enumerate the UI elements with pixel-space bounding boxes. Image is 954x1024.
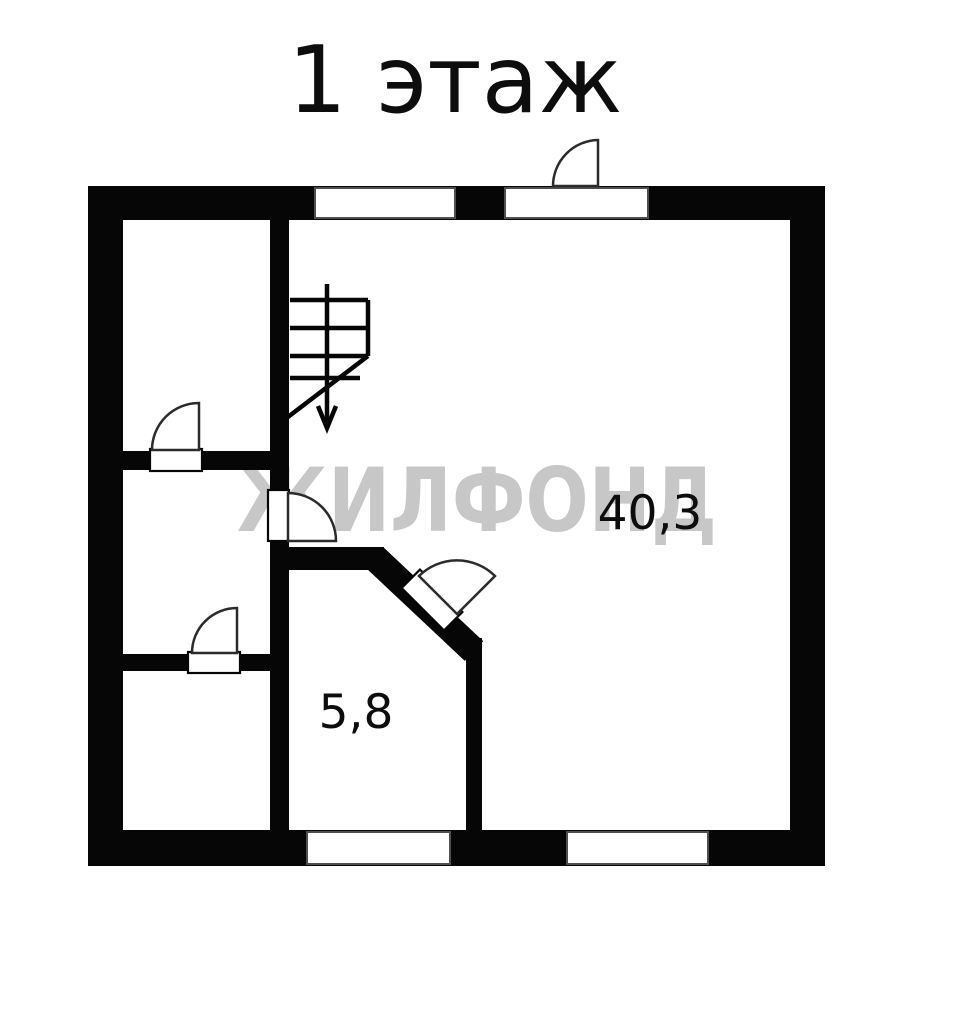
wall-small-room-right: [466, 638, 482, 866]
door-sill-hall: [268, 490, 289, 541]
floor-plan-drawing: ЖИЛФОНД: [0, 0, 954, 1024]
main-room-area-label: 40,3: [598, 486, 703, 541]
window-bottom-left: [307, 832, 450, 864]
entry-door-opening: [505, 188, 648, 218]
entry-door-swing-icon: [553, 140, 598, 186]
door-sill-lower-room: [188, 652, 240, 673]
page-title: 1 этаж: [288, 26, 623, 134]
wall-right: [790, 186, 825, 866]
upper-room-door-swing-icon: [152, 403, 199, 450]
staircase-icon: [284, 284, 368, 428]
door-sill-upper-room: [150, 449, 202, 471]
window-top: [315, 188, 455, 218]
window-bottom-right: [567, 832, 708, 864]
lower-room-door-swing-icon: [192, 608, 237, 653]
small-room-area-label: 5,8: [319, 685, 394, 740]
wall-bottom: [88, 830, 825, 866]
wall-top: [88, 186, 825, 220]
wall-left: [88, 186, 123, 866]
floor-plan-page: ЖИЛФОНД: [0, 0, 954, 1024]
